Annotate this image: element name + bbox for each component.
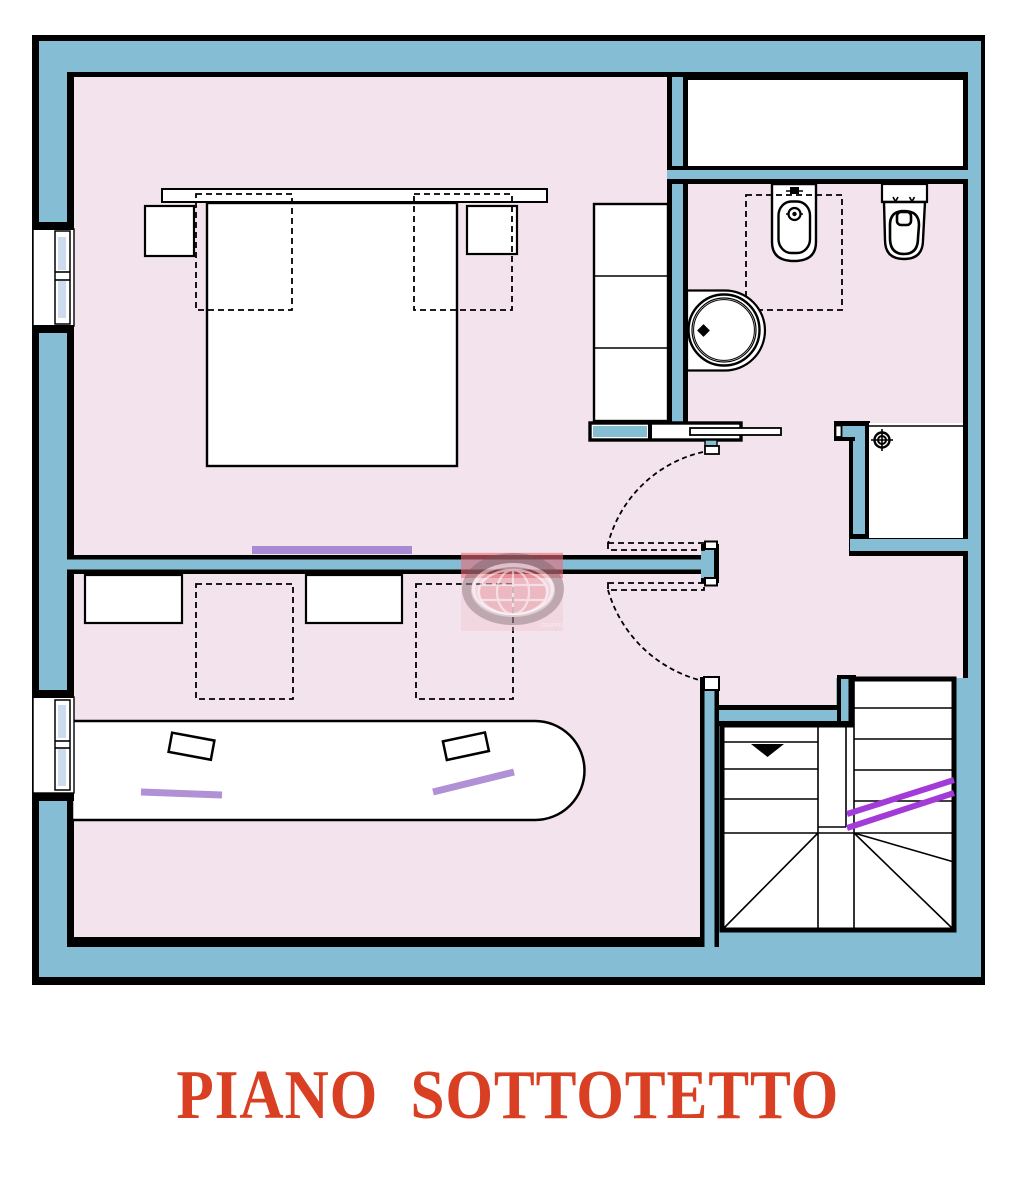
svg-text:GRUPPO: GRUPPO: [541, 623, 563, 629]
